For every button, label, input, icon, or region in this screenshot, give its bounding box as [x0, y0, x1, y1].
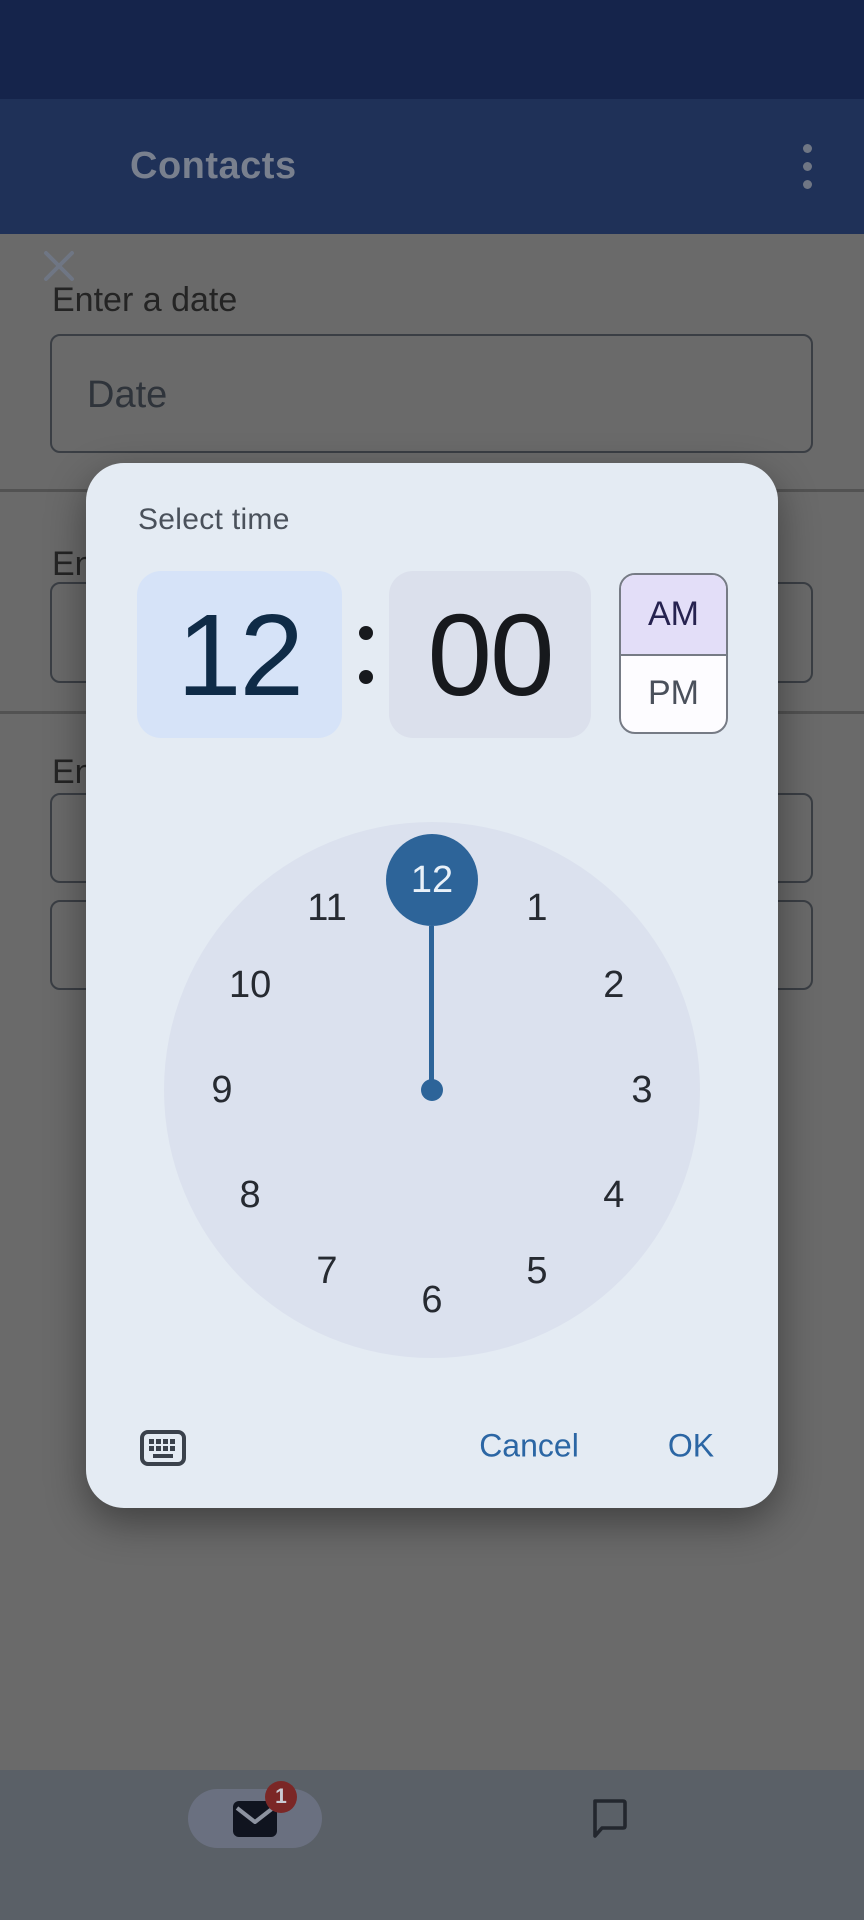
minute-field[interactable]: 00	[389, 571, 591, 738]
clock-number-4[interactable]: 4	[586, 1167, 642, 1223]
minute-value: 00	[427, 588, 552, 722]
clock-number-10[interactable]: 10	[222, 957, 278, 1013]
date-input[interactable]: Date	[50, 334, 813, 453]
hour-value: 12	[177, 588, 302, 722]
time-picker-dialog: Select time 12 00 AM PM 121234567891011	[86, 463, 778, 1508]
clock-hand	[429, 926, 434, 1090]
clock-face[interactable]: 121234567891011	[164, 822, 700, 1358]
dialog-title: Select time	[138, 503, 290, 537]
mail-tab[interactable]	[188, 1789, 322, 1848]
notification-badge: 1	[265, 1781, 297, 1813]
chat-tab[interactable]	[586, 1795, 632, 1841]
pm-option[interactable]: PM	[621, 654, 726, 733]
date-input-placeholder: Date	[87, 336, 167, 451]
time-colon	[342, 571, 389, 738]
clock-number-12[interactable]: 12	[404, 852, 460, 908]
cancel-button[interactable]: Cancel	[471, 1418, 587, 1475]
clock-number-8[interactable]: 8	[222, 1167, 278, 1223]
date-section-label: Enter a date	[52, 281, 237, 320]
pm-label: PM	[648, 674, 699, 713]
clock-center-dot	[421, 1079, 443, 1101]
keyboard-icon[interactable]	[140, 1429, 186, 1467]
clock-number-6[interactable]: 6	[404, 1272, 460, 1328]
am-label: AM	[648, 595, 699, 634]
clock-number-2[interactable]: 2	[586, 957, 642, 1013]
bottom-nav: 1	[0, 1770, 864, 1920]
clock-number-7[interactable]: 7	[299, 1244, 355, 1300]
close-icon[interactable]	[40, 247, 78, 285]
page-title: Contacts	[130, 99, 297, 234]
am-option[interactable]: AM	[621, 575, 726, 654]
meridiem-toggle: AM PM	[619, 573, 728, 734]
clock-number-1[interactable]: 1	[509, 880, 565, 936]
clock-number-3[interactable]: 3	[614, 1062, 670, 1118]
app-bar: Contacts	[0, 99, 864, 234]
overflow-menu-icon[interactable]	[798, 99, 816, 234]
screen: Enter a date Date En En Contacts Select …	[0, 0, 864, 1920]
clock-number-9[interactable]: 9	[194, 1062, 250, 1118]
status-bar	[0, 0, 864, 99]
chat-icon	[586, 1795, 632, 1841]
clock-number-5[interactable]: 5	[509, 1244, 565, 1300]
ok-button[interactable]: OK	[660, 1418, 722, 1475]
hour-field[interactable]: 12	[137, 571, 342, 738]
clock-number-11[interactable]: 11	[299, 880, 355, 936]
